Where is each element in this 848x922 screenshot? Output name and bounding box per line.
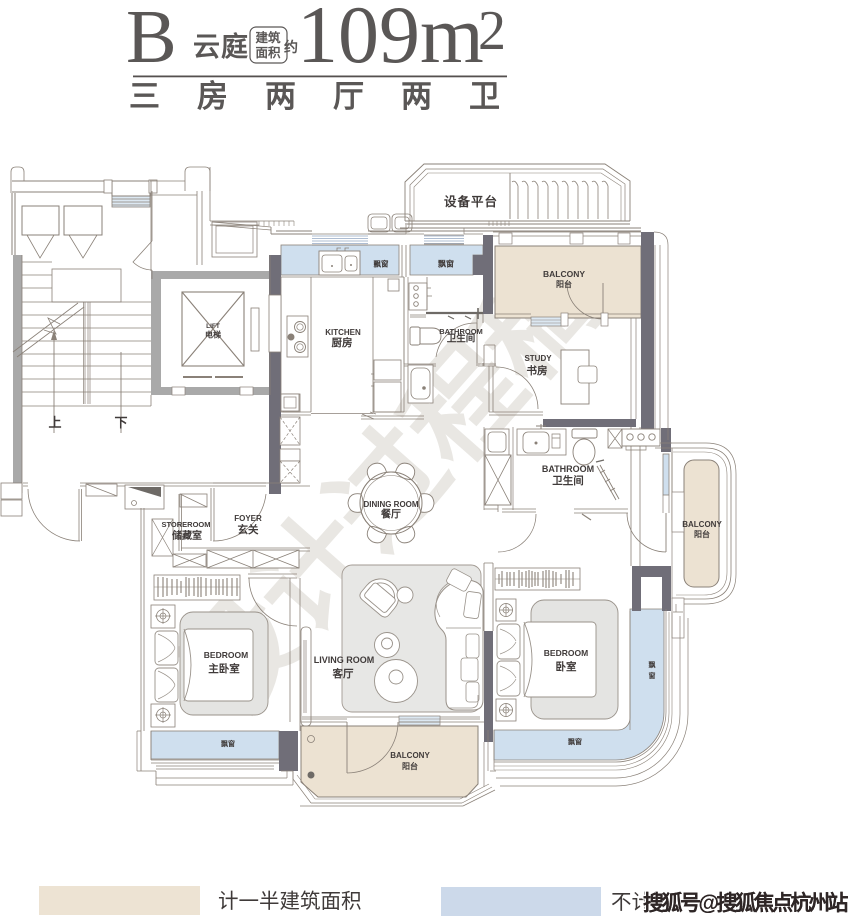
- svg-text:飘窗: 飘窗: [374, 259, 389, 269]
- svg-text:厨房: 厨房: [332, 336, 353, 349]
- svg-text:DINING ROOM: DINING ROOM: [363, 500, 418, 509]
- svg-text:窗: 窗: [649, 671, 656, 680]
- svg-text:面积: 面积: [255, 45, 281, 60]
- svg-text:玄关: 玄关: [238, 523, 259, 536]
- svg-text:餐厅: 餐厅: [380, 508, 401, 521]
- svg-text:主卧室: 主卧室: [208, 662, 240, 675]
- svg-text:FOYER: FOYER: [234, 514, 262, 523]
- svg-text:飘窗: 飘窗: [221, 739, 235, 748]
- svg-text:飘窗: 飘窗: [568, 737, 582, 746]
- svg-text:BEDROOM: BEDROOM: [544, 648, 588, 658]
- svg-text:STOREROOM: STOREROOM: [161, 520, 210, 529]
- svg-text:飘: 飘: [649, 660, 656, 669]
- svg-text:阳台: 阳台: [402, 761, 418, 771]
- svg-text:约: 约: [284, 39, 298, 55]
- svg-text:109m: 109m: [297, 0, 484, 80]
- svg-text:BALCONY: BALCONY: [682, 520, 722, 529]
- svg-text:设备平台: 设备平台: [444, 194, 498, 209]
- svg-text:上: 上: [48, 415, 61, 430]
- svg-text:客厅: 客厅: [332, 667, 354, 680]
- svg-text:三房两厅两卫: 三房两厅两卫: [129, 79, 537, 114]
- svg-text:卫生间: 卫生间: [552, 474, 584, 487]
- svg-text:STUDY: STUDY: [524, 354, 552, 363]
- svg-text:BALCONY: BALCONY: [390, 751, 430, 760]
- svg-text:LIFT: LIFT: [206, 323, 220, 330]
- svg-text:BEDROOM: BEDROOM: [204, 650, 248, 660]
- svg-text:阳台: 阳台: [694, 529, 710, 539]
- svg-text:电梯: 电梯: [205, 330, 221, 340]
- svg-text:阳台: 阳台: [556, 279, 572, 289]
- svg-text:储藏室: 储藏室: [171, 529, 202, 542]
- svg-text:BATHROOM: BATHROOM: [542, 464, 594, 474]
- svg-text:LIVING ROOM: LIVING ROOM: [314, 655, 375, 665]
- svg-text:飘窗: 飘窗: [438, 259, 454, 269]
- svg-text:下: 下: [114, 415, 127, 430]
- svg-text:卫生间: 卫生间: [447, 333, 476, 345]
- svg-text:BALCONY: BALCONY: [543, 269, 585, 279]
- svg-text:搜狐号@搜狐焦点杭州站: 搜狐号@搜狐焦点杭州站: [643, 891, 848, 915]
- svg-text:B: B: [126, 0, 177, 79]
- svg-text:2: 2: [478, 0, 506, 62]
- svg-text:建筑: 建筑: [255, 30, 281, 45]
- svg-text:KITCHEN: KITCHEN: [325, 328, 361, 337]
- svg-text:卧室: 卧室: [556, 660, 577, 673]
- svg-text:计一半建筑面积: 计一半建筑面积: [218, 890, 362, 913]
- svg-text:书房: 书房: [527, 364, 548, 377]
- svg-text:云庭: 云庭: [193, 31, 249, 62]
